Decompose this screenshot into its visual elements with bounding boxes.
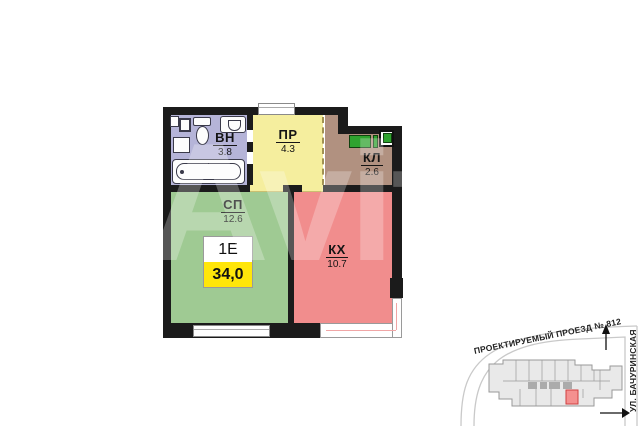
floorplan-canvas: ВН 3.8 ПР 4.3 КЛ 2.6 СП 12.6 КХ 10.7 1Е … [0, 0, 640, 426]
wall-left [163, 107, 171, 338]
street-label-right: УЛ. БАЧУРИНСКАЯ [628, 329, 638, 412]
wardrobe-icon-narrow [373, 135, 378, 148]
room-area: 4.3 [258, 145, 318, 155]
room-area: 2.6 [342, 168, 402, 178]
room-code: СП [221, 198, 245, 213]
room-label-bedroom: СП 12.6 [203, 197, 263, 225]
window-top [258, 103, 295, 115]
entrance-door-icon [379, 130, 394, 147]
unit-info-box: 1Е 34,0 [203, 236, 253, 288]
unit-type-badge: 1Е [204, 237, 252, 262]
room-code: ПР [276, 128, 299, 143]
building-core [549, 382, 560, 389]
duct-icon [170, 116, 179, 127]
room-area: 10.7 [307, 260, 367, 270]
washing-machine-icon [179, 118, 191, 132]
balcony-outline-side [392, 298, 402, 338]
room-code: КЛ [361, 151, 383, 166]
window-bottom [193, 325, 270, 337]
room-code: КХ [326, 243, 348, 258]
entrance-door-leaf [383, 133, 392, 143]
location-minimap: ПРОЕКТИРУЕМЫЙ ПРОЕЗД № 812 УЛ. БАЧУРИНСК… [450, 316, 640, 426]
wardrobe-icon [349, 135, 371, 148]
wall-right [392, 126, 402, 278]
zone-divider-dashed-line [322, 117, 324, 185]
wall-right-stub [390, 278, 403, 298]
door-opening-hallway-kitchen [302, 185, 323, 192]
building-core [540, 382, 547, 389]
room-area: 12.6 [203, 215, 263, 225]
cabinet-icon [173, 137, 190, 153]
wall-mid-c [323, 185, 392, 192]
bathtub-drain [180, 170, 184, 174]
toilet-tank-icon [193, 117, 211, 126]
room-label-hallway: ПР 4.3 [258, 127, 318, 155]
unit-highlight [566, 390, 578, 404]
bathtub-inner [176, 163, 241, 180]
building-core [563, 382, 572, 389]
building-core [528, 382, 537, 389]
window-pane-line [194, 329, 269, 330]
room-label-bathroom: ВН 3.8 [195, 130, 255, 158]
wall-mid-a [171, 185, 250, 192]
door-opening-hallway-bedroom [250, 185, 283, 192]
wall-top [163, 107, 344, 115]
room-area: 3.8 [195, 148, 255, 158]
total-area-badge: 34,0 [204, 262, 252, 287]
balcony-rail-line-side [396, 303, 397, 330]
window-pane-line [259, 107, 294, 108]
room-code: ВН [213, 131, 237, 146]
room-label-closet: КЛ 2.6 [342, 150, 402, 178]
room-label-kitchen: КХ 10.7 [307, 242, 367, 270]
bathtub-icon [172, 159, 245, 184]
wall-bedroom-kitchen [288, 185, 294, 323]
balcony-rail-line [326, 330, 396, 331]
